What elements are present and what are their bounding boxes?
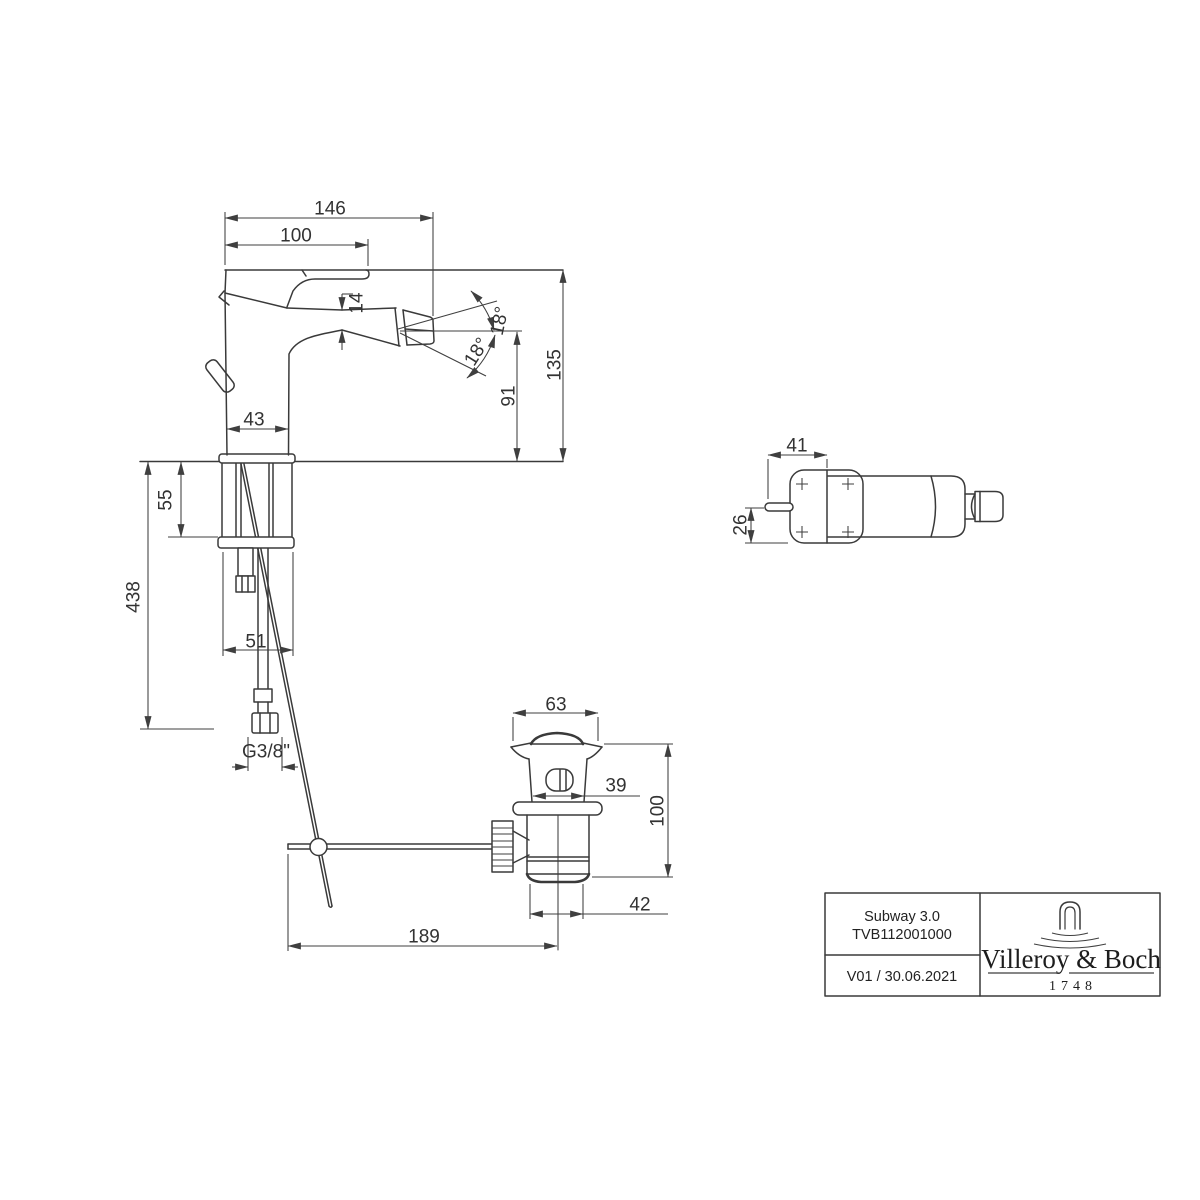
body-plan-division [931, 476, 936, 537]
head-front-slope [225, 293, 287, 308]
dim-outlet-height: 91 [499, 385, 520, 406]
title-block: Subway 3.0 TVB112001000 V01 / 30.06.2021… [825, 893, 1161, 996]
drain-view: 63 39 100 42 189 [288, 695, 673, 952]
revision-date: V01 / 30.06.2021 [847, 969, 957, 985]
g38-hex-nut [252, 713, 278, 733]
rod-pivot-ball [310, 839, 327, 856]
dim-body-width: 43 [243, 410, 264, 431]
tailpiece-nut [492, 821, 529, 872]
article-number: TVB112001000 [852, 927, 952, 943]
dim-spray-angle-upper: 18° [487, 305, 514, 337]
faucet-body-outline [219, 270, 563, 455]
dim-thread: G3/8" [242, 742, 290, 763]
dim-base-width: 51 [245, 632, 266, 653]
plug-cap [531, 733, 583, 744]
dim-flange-width: 63 [545, 695, 566, 716]
side-knob [204, 358, 236, 394]
drawing-sheet: 146 100 14 18° 18° 91 135 43 55 438 51 G… [0, 0, 1200, 1200]
drain-dimensions: 63 39 100 42 189 [288, 695, 673, 952]
front-view-dimensions: 146 100 14 18° 18° 91 135 43 55 438 51 G… [124, 199, 566, 772]
dim-total-height: 135 [545, 349, 566, 381]
dim-drain-height: 100 [648, 795, 669, 827]
dim-outlet-width: 42 [629, 895, 650, 916]
dim-handle-offset: 26 [731, 514, 752, 535]
dim-spout-reach: 100 [280, 226, 312, 247]
technical-drawing-canvas: 146 100 14 18° 18° 91 135 43 55 438 51 G… [0, 0, 1200, 1200]
dim-overall-depth: 146 [314, 199, 346, 220]
faucet-arch-water-ripples-icon [1034, 902, 1106, 948]
front-view: 146 100 14 18° 18° 91 135 43 55 438 51 G… [124, 199, 566, 908]
hose-connector [252, 689, 278, 733]
spout-neck-plan [965, 494, 975, 519]
brand-logo: Villeroy & Boch 1748 [981, 902, 1161, 994]
flange-bowl [511, 747, 602, 759]
drain-body [511, 733, 602, 950]
deck-line [287, 308, 342, 310]
brand-name: Villeroy & Boch [981, 944, 1161, 974]
dim-hose-length: 438 [124, 581, 145, 613]
base-plate [219, 454, 295, 463]
brand-since-year: 1748 [1049, 979, 1097, 994]
handle-seam-tick [302, 270, 306, 276]
spout-cone-bottom [342, 330, 400, 346]
mounting-washer [218, 537, 294, 548]
dim-handle-reach: 41 [786, 436, 807, 457]
body-plan [828, 476, 965, 537]
dim-mount-depth: 55 [156, 489, 177, 510]
top-view-dimensions: 41 26 [731, 436, 828, 544]
aerator-plan [975, 492, 1003, 522]
product-name: Subway 3.0 [864, 909, 940, 925]
aerator-body [403, 310, 434, 345]
dim-aerator-width: 14 [347, 292, 368, 314]
drain-linkage [288, 839, 492, 856]
locknut-flange [513, 802, 602, 815]
spout-underside-sweep [289, 330, 343, 455]
screw-cross-marks [796, 478, 854, 538]
side-knob-plan [765, 503, 793, 511]
dim-rod-length: 189 [408, 927, 440, 948]
dim-spray-angle-lower: 18° [460, 334, 493, 369]
dim-drain-body-width: 39 [605, 776, 626, 797]
body-left-edge [225, 270, 227, 455]
mounting-bolt [236, 548, 255, 592]
top-view: 41 26 [731, 436, 1004, 544]
